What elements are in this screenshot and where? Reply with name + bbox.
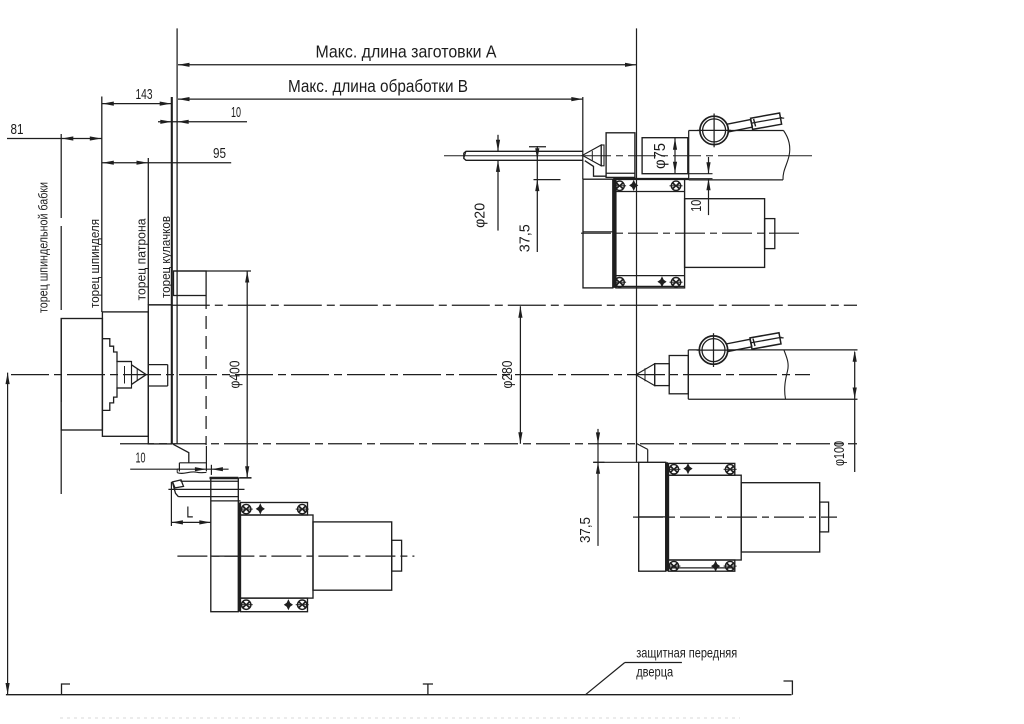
svg-text:143: 143 [136, 86, 153, 103]
svg-text:Макс. длина заготовки А: Макс. длина заготовки А [316, 42, 497, 62]
svg-text:95: 95 [213, 145, 226, 162]
svg-text:φ280: φ280 [499, 361, 516, 389]
svg-text:81: 81 [11, 121, 24, 138]
svg-text:10: 10 [231, 104, 241, 121]
svg-text:торец шпиндельной бабки: торец шпиндельной бабки [36, 182, 51, 313]
svg-text:37,5: 37,5 [517, 224, 534, 252]
svg-text:φ400: φ400 [227, 361, 244, 389]
svg-text:торец шпинделя: торец шпинделя [87, 219, 102, 308]
svg-text:37,5: 37,5 [578, 517, 594, 543]
svg-text:защитная передняя: защитная передняя [636, 645, 737, 661]
svg-text:φ75: φ75 [652, 143, 669, 169]
svg-text:Макс. длина обработки В: Макс. длина обработки В [288, 76, 468, 96]
svg-text:дверца: дверца [636, 664, 673, 680]
svg-text:торец кулачков: торец кулачков [158, 216, 173, 298]
svg-text:L: L [186, 505, 193, 522]
svg-text:10: 10 [688, 200, 705, 212]
svg-text:10: 10 [136, 449, 146, 466]
svg-text:торец патрона: торец патрона [133, 218, 148, 301]
svg-text:φ100: φ100 [832, 441, 848, 466]
svg-text:φ20: φ20 [472, 203, 489, 228]
